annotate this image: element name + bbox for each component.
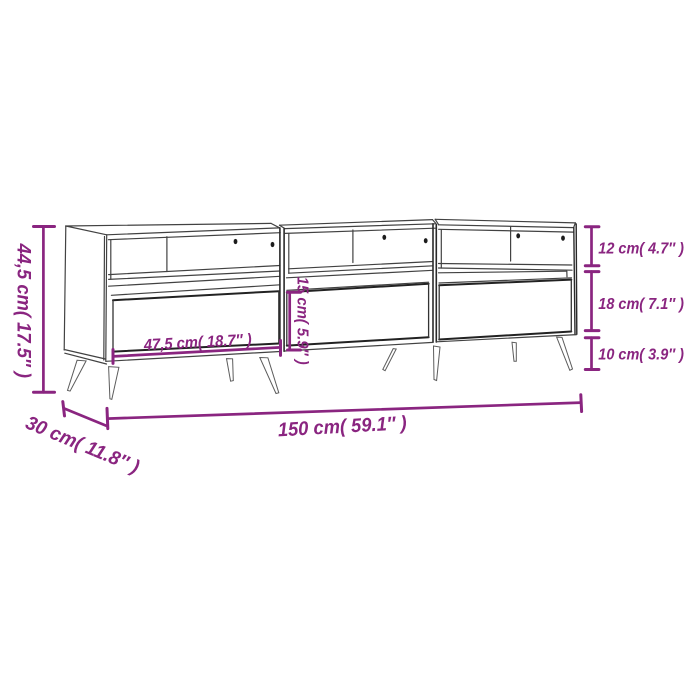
svg-text:15 cm( 5.9″ ): 15 cm( 5.9″ ) xyxy=(294,277,311,365)
svg-text:18 cm( 7.1″ ): 18 cm( 7.1″ ) xyxy=(598,296,684,313)
svg-text:12 cm( 4.7″ ): 12 cm( 4.7″ ) xyxy=(598,241,684,258)
svg-text:150 cm( 59.1″ ): 150 cm( 59.1″ ) xyxy=(277,412,407,441)
svg-text:10 cm( 3.9″ ): 10 cm( 3.9″ ) xyxy=(598,347,684,364)
svg-text:44,5 cm( 17.5″ ): 44,5 cm( 17.5″ ) xyxy=(13,243,35,378)
svg-text:30 cm( 11.8″ ): 30 cm( 11.8″ ) xyxy=(22,412,142,479)
